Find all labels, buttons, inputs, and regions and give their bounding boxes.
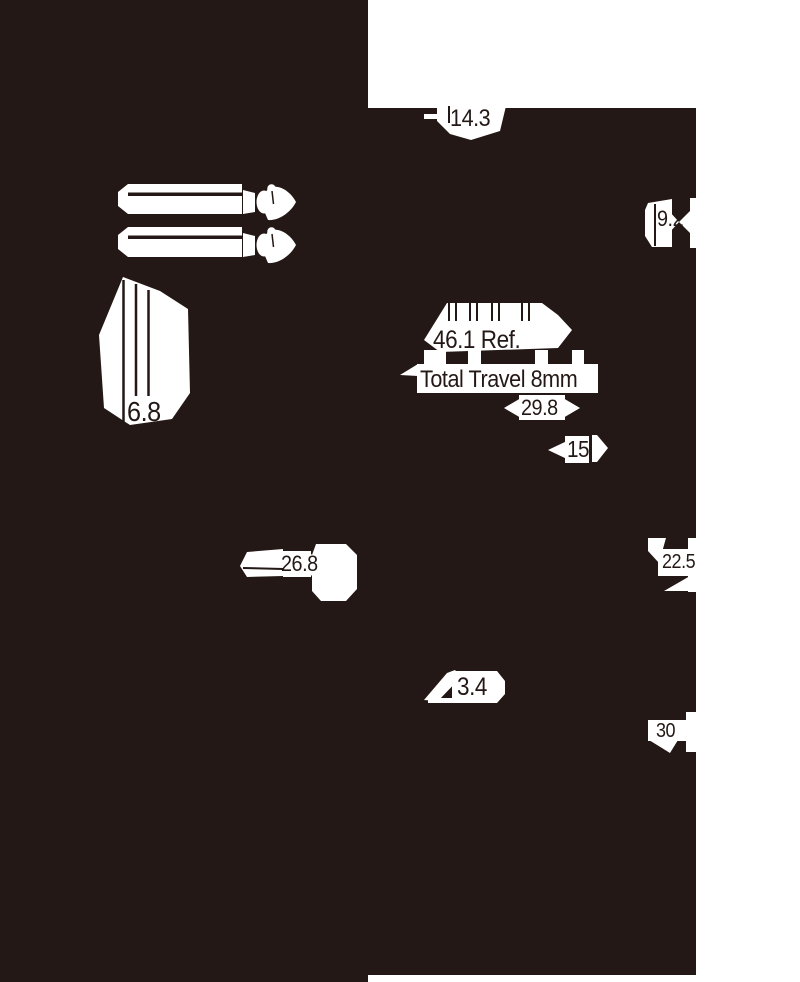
- dim-pin-offset: 3.4: [457, 675, 487, 700]
- dim-mount-pitch: 29.8: [521, 397, 558, 419]
- dim-height: 22.5: [662, 552, 695, 572]
- dim-depth: 30: [656, 721, 675, 741]
- dim-lever-pitch: 9.2: [657, 208, 683, 230]
- lever-shaft: [118, 227, 242, 257]
- shaft-edge-line: [128, 236, 242, 240]
- bridge-fill: [690, 198, 700, 248]
- lever-shaft: [118, 184, 242, 214]
- technical-drawing: 14.3 9.2 6.8 46.1 Ref. Total Travel 8mm …: [0, 0, 800, 982]
- bridge-fill: [686, 712, 698, 752]
- dim-travel: Total Travel 8mm: [420, 368, 577, 392]
- bar-edge-line: [243, 568, 283, 569]
- dim-body-width: 26.8: [281, 553, 318, 575]
- main-silhouette: [0, 0, 696, 982]
- lever-neck: [243, 233, 255, 257]
- dim-body-thickness: 6.8: [127, 398, 161, 426]
- knob-face: [312, 544, 357, 601]
- dim-stroke: 15: [567, 438, 589, 461]
- lever-neck: [243, 190, 255, 214]
- drawing-canvas: [0, 0, 800, 982]
- tab-fill: [572, 350, 584, 366]
- shaft-edge-line: [128, 193, 242, 197]
- dim-ref-length: 46.1 Ref.: [433, 328, 520, 353]
- pointer-bar: [240, 549, 283, 577]
- tab-fill: [535, 350, 548, 366]
- leader-line: [424, 114, 451, 119]
- dim-top-offset: 14.3: [450, 107, 490, 131]
